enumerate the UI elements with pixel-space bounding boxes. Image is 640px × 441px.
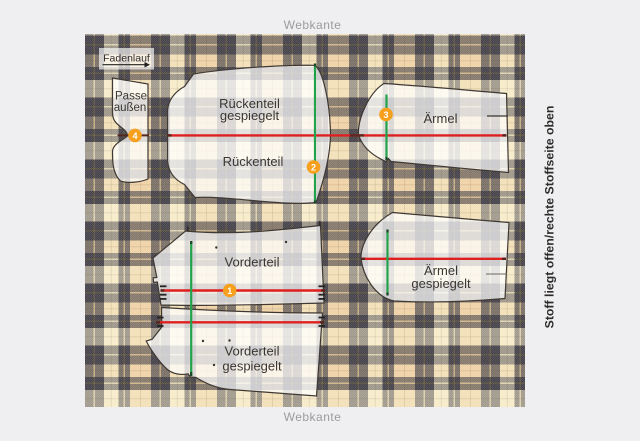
- svg-text:gespiegelt: gespiegelt: [220, 108, 280, 123]
- svg-text:4: 4: [132, 131, 137, 141]
- svg-text:Rückenteil: Rückenteil: [223, 154, 284, 169]
- svg-text:außen: außen: [114, 102, 147, 114]
- svg-text:Fadenlauf: Fadenlauf: [103, 53, 150, 65]
- svg-text:1: 1: [227, 286, 232, 296]
- svg-text:gespiegelt: gespiegelt: [222, 359, 282, 374]
- svg-text:gespiegelt: gespiegelt: [411, 276, 471, 291]
- svg-text:3: 3: [383, 110, 388, 120]
- svg-text:Vorderteil: Vorderteil: [225, 255, 280, 270]
- svg-text:Passe: Passe: [115, 91, 147, 103]
- svg-text:2: 2: [311, 163, 316, 173]
- svg-text:Stoff liegt offen/rechte Stoff: Stoff liegt offen/rechte Stoffseite oben: [543, 106, 557, 329]
- svg-text:Webkante: Webkante: [284, 18, 342, 32]
- svg-text:Ärmel: Ärmel: [424, 111, 458, 126]
- svg-text:Vorderteil: Vorderteil: [225, 344, 280, 359]
- svg-text:Webkante: Webkante: [284, 410, 342, 424]
